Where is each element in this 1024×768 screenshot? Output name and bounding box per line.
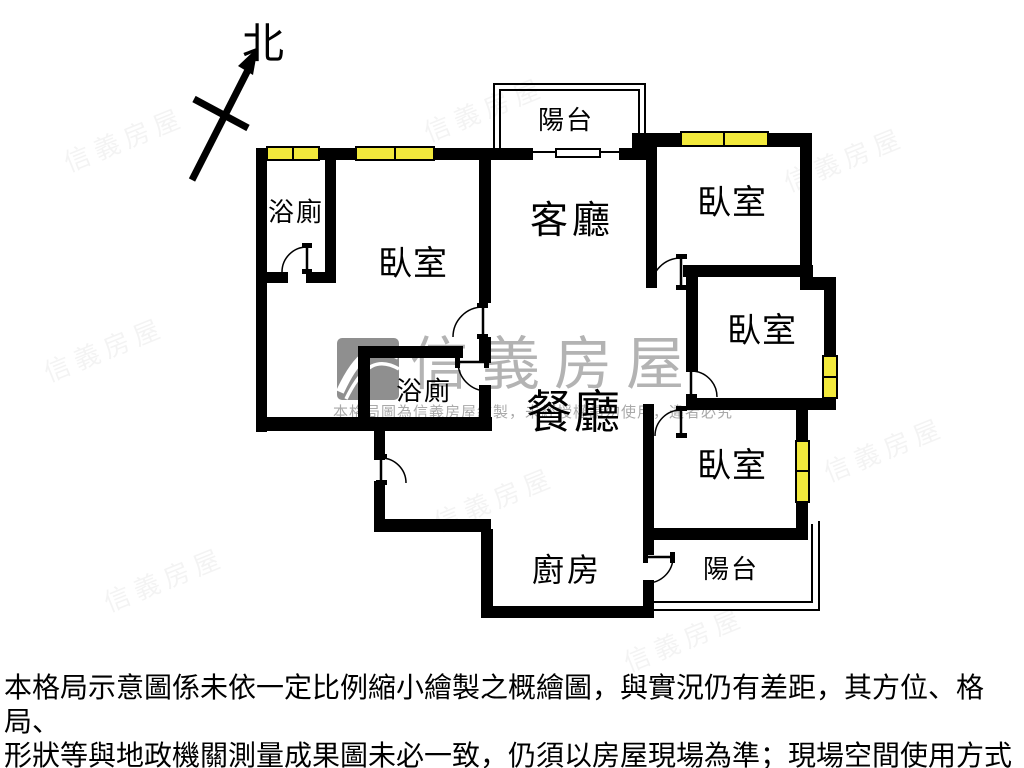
room-label-bedroom-top-right: 臥室 bbox=[697, 187, 767, 221]
door-bathroom-upper-left bbox=[282, 243, 312, 274]
door-bedroom-bottom-right bbox=[655, 406, 687, 438]
floorplan-drawing bbox=[0, 0, 1024, 670]
room-label-balcony-top: 陽台 bbox=[538, 108, 594, 134]
window-bedroom-left-top bbox=[356, 147, 434, 160]
room-label-living-room: 客廳 bbox=[530, 202, 614, 240]
disclaimer-line-2: 形狀等與地政機關測量成果圖未必一致，仍須以房屋現場為準；現場空間使用方式及 bbox=[4, 740, 1022, 768]
disclaimer-text: 本格局示意圖係未依一定比例縮小繪製之概繪圖，與實況仍有差距，其方位、格局、 形狀… bbox=[4, 672, 1022, 768]
door-bedroom-mid-right bbox=[686, 367, 717, 399]
north-label: 北 bbox=[242, 10, 284, 71]
room-label-bedroom-mid-right: 臥室 bbox=[727, 315, 797, 349]
room-label-balcony-bottom: 陽台 bbox=[703, 557, 759, 583]
sliding-door bbox=[532, 149, 620, 157]
room-label-dining-room: 餐廳 bbox=[526, 390, 622, 436]
window-bedroom-top-right bbox=[681, 132, 768, 146]
window-bedroom-mid-right bbox=[823, 356, 837, 398]
window-bedroom-bottom-right bbox=[796, 441, 809, 502]
door-entrance bbox=[376, 454, 406, 485]
door-bedroom-left bbox=[453, 303, 488, 339]
room-label-bedroom-left: 臥室 bbox=[378, 248, 448, 282]
room-label-bathroom-center: 浴廁 bbox=[396, 379, 452, 405]
door-kitchen-balcony bbox=[643, 552, 675, 583]
window-bathroom-top bbox=[267, 147, 319, 160]
room-label-bedroom-bottom-right: 臥室 bbox=[697, 450, 767, 484]
room-label-kitchen: 廚房 bbox=[532, 554, 602, 586]
floorplan-page: 信義房屋 信義房屋 信義房屋 信義房屋 信義房屋 信義房屋 信義房屋 信義房屋 … bbox=[0, 0, 1024, 768]
room-label-bathroom-upper-left: 浴廁 bbox=[268, 200, 324, 226]
disclaimer-line-1: 本格局示意圖係未依一定比例縮小繪製之概繪圖，與實況仍有差距，其方位、格局、 bbox=[4, 672, 1022, 740]
